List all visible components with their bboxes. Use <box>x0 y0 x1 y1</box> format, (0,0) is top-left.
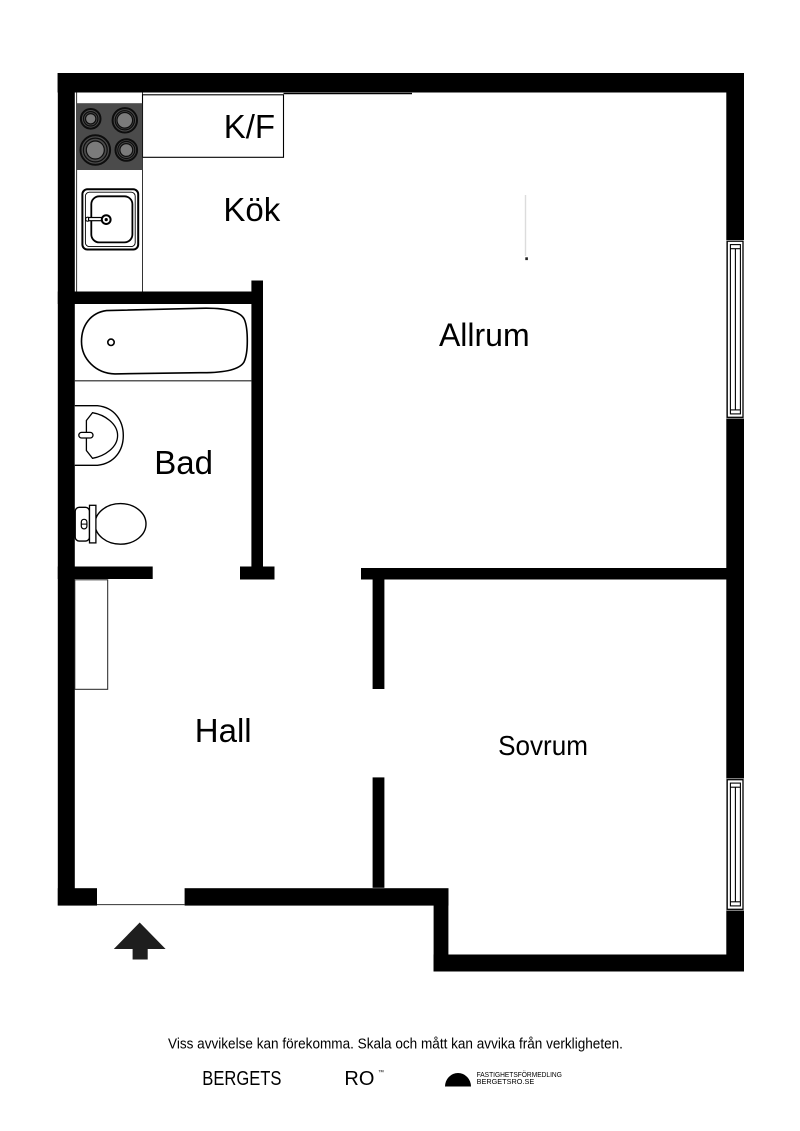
svg-text:Hall: Hall <box>195 712 252 749</box>
svg-text:Kök: Kök <box>223 191 280 228</box>
svg-text:Sovrum: Sovrum <box>498 730 588 761</box>
svg-text:K/F: K/F <box>224 108 275 145</box>
svg-text:RO: RO <box>344 1068 374 1090</box>
svg-text:™: ™ <box>378 1069 384 1076</box>
svg-text:BERGETS: BERGETS <box>202 1067 281 1090</box>
svg-text:BERGETSRO.SE: BERGETSRO.SE <box>477 1077 535 1086</box>
svg-text:Viss avvikelse kan förekomma.: Viss avvikelse kan förekomma. Skala och … <box>168 1035 623 1052</box>
svg-text:Allrum: Allrum <box>439 317 530 353</box>
svg-text:Bad: Bad <box>154 444 213 481</box>
